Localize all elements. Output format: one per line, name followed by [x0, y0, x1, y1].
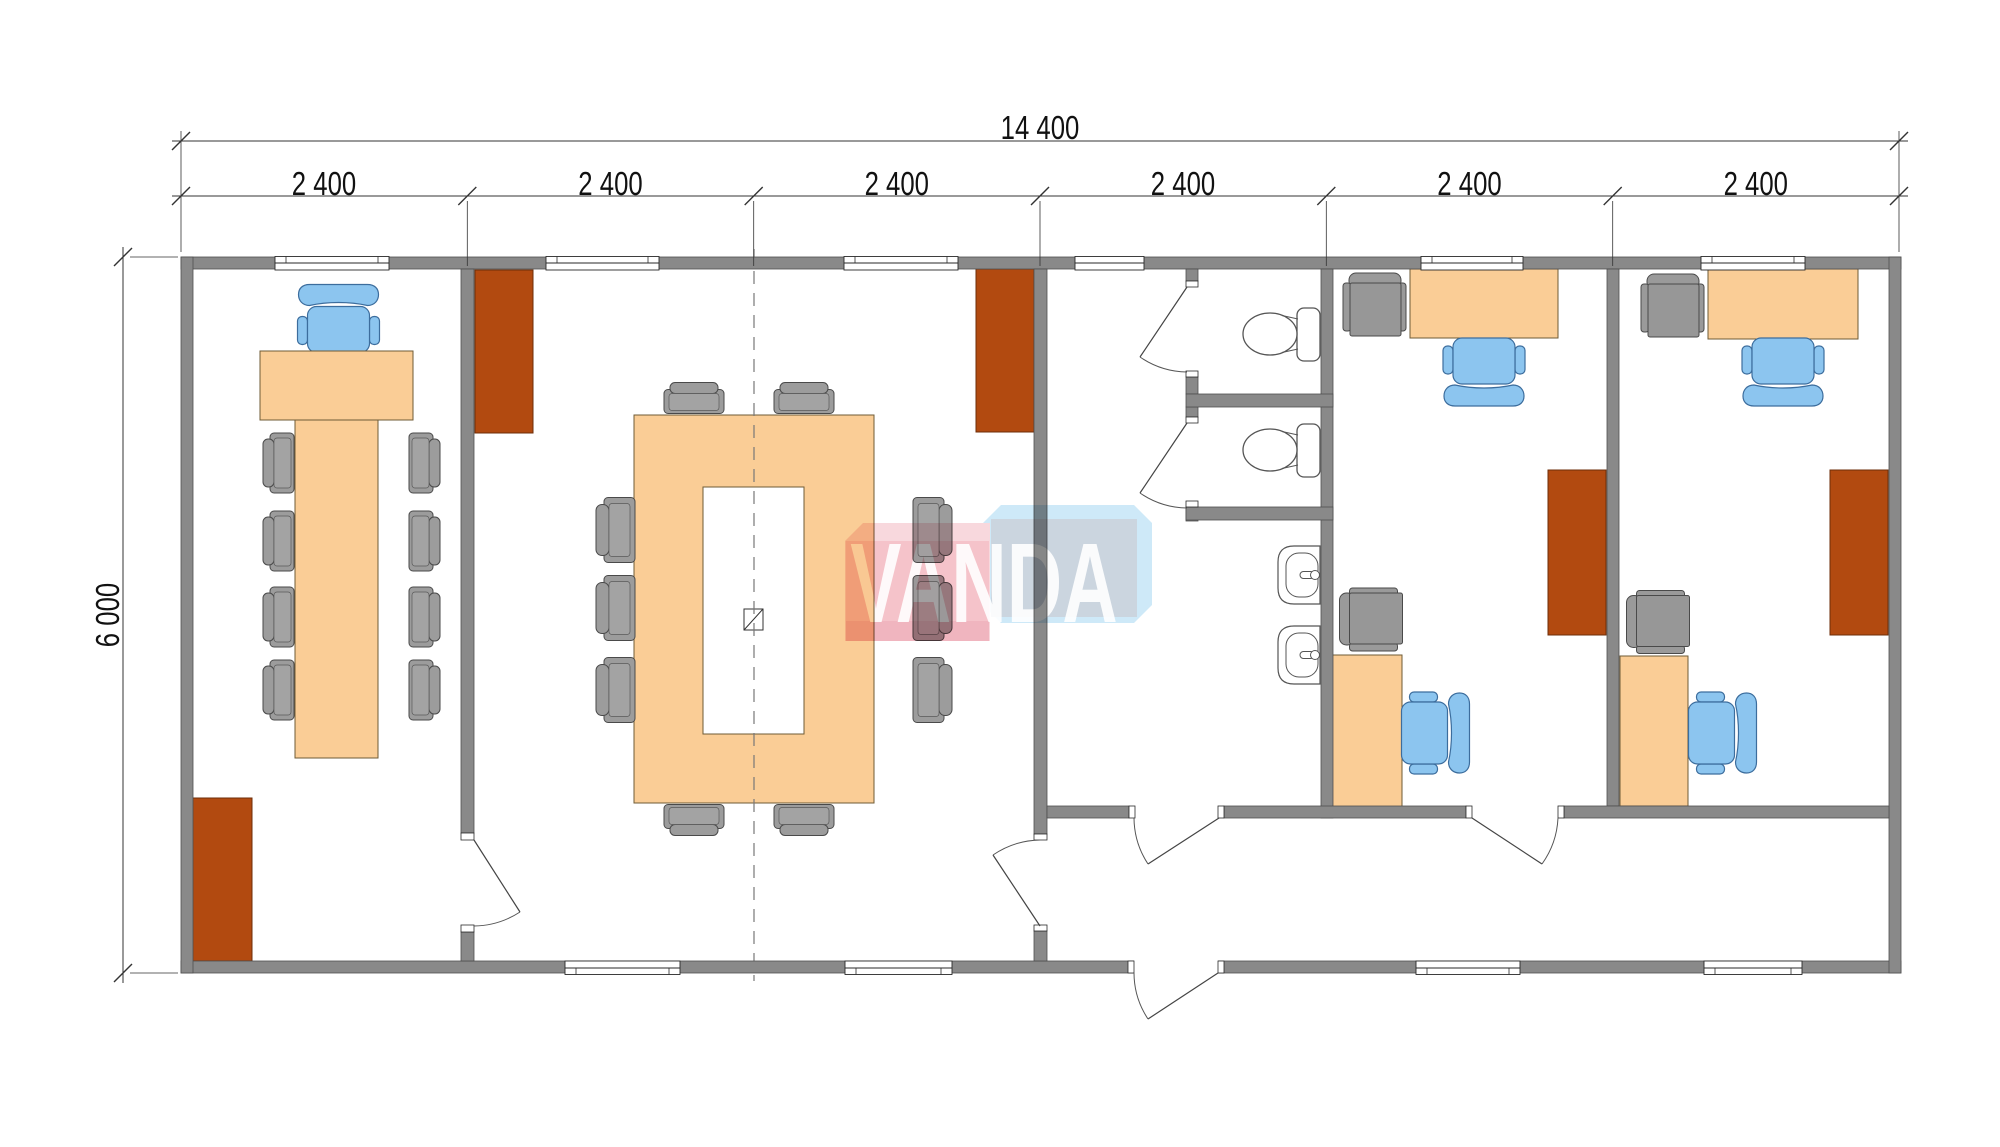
svg-text:2 400: 2 400: [292, 166, 356, 203]
svg-text:2 400: 2 400: [578, 166, 642, 203]
svg-text:2 400: 2 400: [1151, 166, 1215, 203]
svg-text:2 400: 2 400: [1724, 166, 1788, 203]
svg-text:6 000: 6 000: [90, 583, 127, 647]
svg-text:14 400: 14 400: [1001, 110, 1080, 147]
svg-text:2 400: 2 400: [865, 166, 929, 203]
svg-text:2 400: 2 400: [1437, 166, 1501, 203]
